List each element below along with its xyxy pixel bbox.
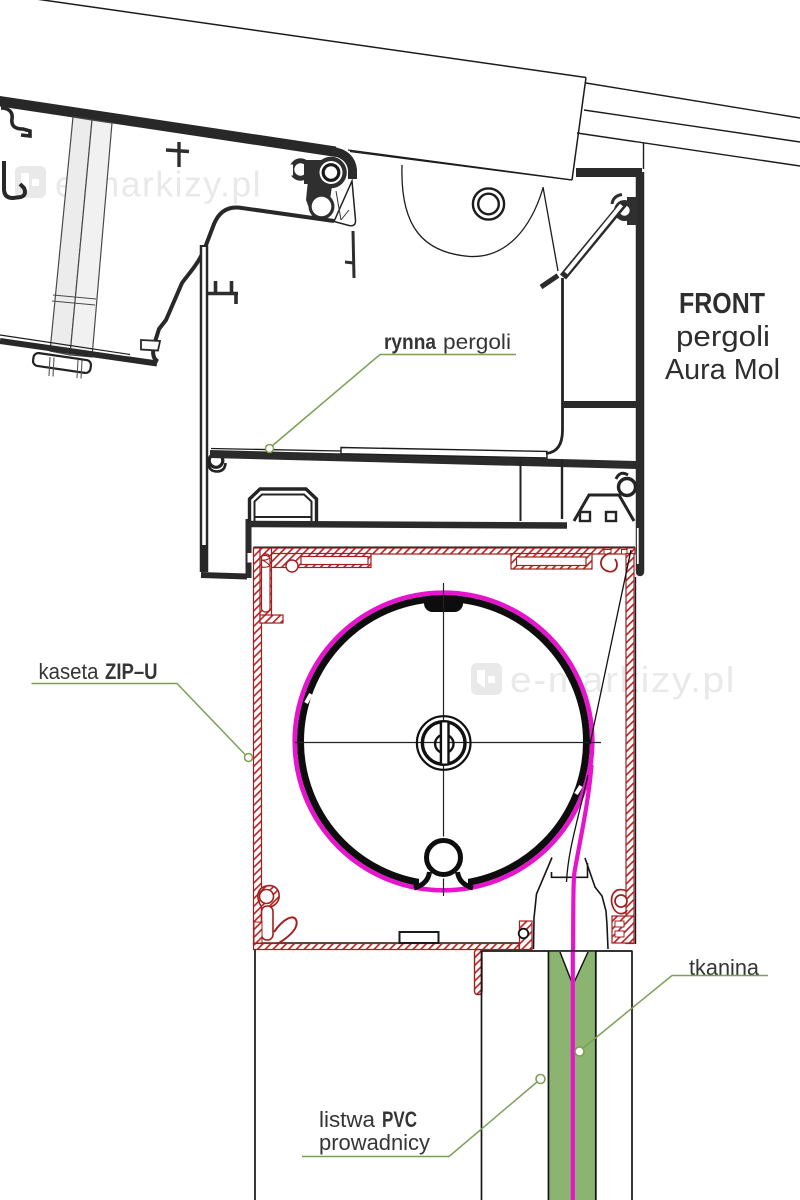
svg-text:Aura Mol: Aura Mol bbox=[665, 354, 780, 386]
svg-text:prowadnicy: prowadnicy bbox=[319, 1130, 430, 1155]
svg-text:PVC: PVC bbox=[382, 1107, 417, 1132]
svg-text:ZIP–U: ZIP–U bbox=[105, 659, 158, 684]
svg-text:rynna: rynna bbox=[384, 330, 437, 354]
svg-text:pergoli: pergoli bbox=[443, 330, 511, 354]
svg-text:e-markizy.pl: e-markizy.pl bbox=[510, 659, 736, 700]
svg-text:pergoli: pergoli bbox=[676, 321, 770, 353]
svg-text:kaseta: kaseta bbox=[39, 659, 100, 684]
svg-text:listwa: listwa bbox=[319, 1107, 376, 1132]
svg-text:FRONT: FRONT bbox=[679, 288, 766, 320]
